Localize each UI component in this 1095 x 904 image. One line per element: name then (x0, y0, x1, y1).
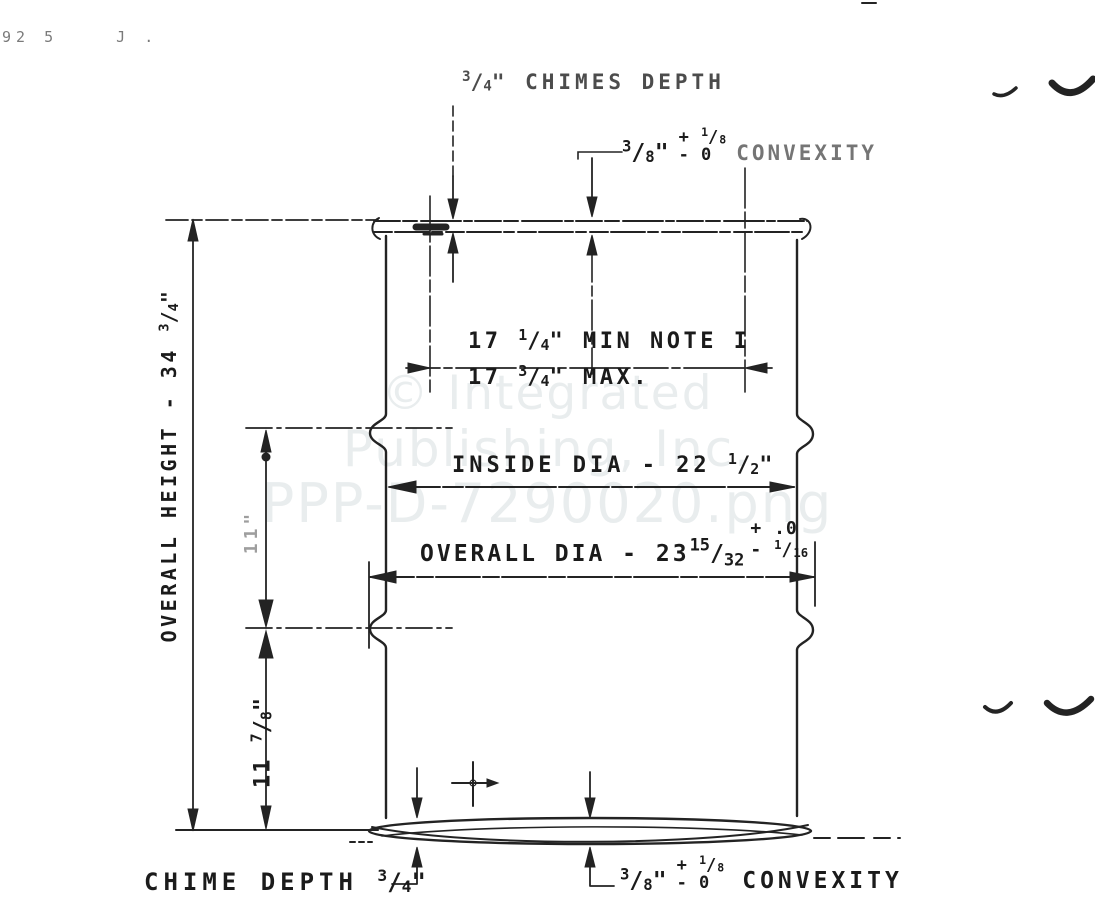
d17min-post: " MIN NOTE I (550, 329, 751, 354)
overall-dia-plus: + .0 (750, 520, 808, 539)
conv-top-frac-den: 8 (645, 147, 654, 166)
inner-arrow-up-lower (259, 631, 273, 658)
overall-height-label: OVERALL HEIGHT - 34 3/4" (159, 288, 182, 643)
chime-top-arrow-down (448, 199, 458, 219)
inner-arrow-down-lower (261, 806, 271, 829)
conv-bottom-frac-den: 8 (643, 875, 652, 894)
overall-dia-tolerance: + .0- 1/16 (750, 520, 808, 561)
inside-dia-arrow-left (388, 481, 416, 493)
chimes-top-text: " CHIMES DEPTH (492, 70, 725, 94)
chime-bottom-frac-den: 4 (402, 877, 412, 896)
overall-height-frac-num: 3 (157, 323, 173, 331)
drawing-sheet: © Integrated Publishing, Inc. PPP-D-7290… (0, 0, 1095, 904)
mid-height-text: 11" (241, 510, 262, 555)
conv-top-frac-num: 3 (622, 136, 631, 155)
inside-dia-frac-num: 1 (728, 450, 737, 468)
conv-top-arrow-down (587, 197, 597, 217)
d17max-pre: 17 (468, 365, 518, 390)
lower-height-frac-slash: / (251, 720, 276, 733)
mid-height-label: 11" (243, 510, 261, 555)
dim-17max-label: 17 3/4" MAX. (468, 364, 650, 389)
d17max-frac-num: 3 (518, 362, 527, 380)
overall-height-frac-slash: / (157, 311, 181, 323)
conv-top-plus-den: 8 (719, 133, 726, 147)
conv-bottom-minus: - 0 (677, 875, 725, 893)
inside-dia-frac-slash: / (737, 453, 750, 478)
corner-scribble: 92 5 J . (2, 28, 158, 46)
overall-dia-frac-slash: / (710, 541, 724, 567)
corner-scribble-left: 92 5 (2, 28, 58, 46)
arrow-17-left (408, 363, 430, 373)
d17max-frac-den: 4 (541, 372, 550, 390)
conv-bottom-text: CONVEXITY (742, 868, 903, 894)
conv-top-bracket (578, 152, 622, 159)
convexity-top-label: 3/8"+ 1/8- 0CONVEXITY (622, 134, 877, 173)
overall-dia-minus-num: 1 (774, 538, 781, 552)
conv-bottom-plus-den: 8 (717, 861, 724, 875)
corner-scribble-right: J . (116, 28, 158, 46)
height-arrow-down (188, 809, 198, 831)
chime-bottom-arrow-down (412, 798, 422, 818)
chimes-depth-top-label: 3/4" CHIMES DEPTH (462, 70, 725, 94)
d17min-frac-num: 1 (518, 326, 527, 344)
overall-dia-minus-den: 16 (793, 546, 808, 560)
crescent-top-small (994, 88, 1016, 96)
chime-bottom-post: " (412, 868, 431, 896)
overall-dia-pre: OVERALL DIA - 23 (420, 541, 690, 567)
lower-height-post: " (251, 696, 276, 711)
overall-dia-label: OVERALL DIA - 2315/32+ .0- 1/16 (420, 534, 808, 575)
chimes-top-frac-slash: / (471, 70, 484, 94)
drum-left-wall (370, 236, 386, 818)
inner-arrow-down-heavy (259, 600, 273, 627)
conv-top-frac-slash: / (631, 140, 645, 166)
d17min-frac-slash: / (527, 329, 540, 354)
inside-dia-post: " (759, 453, 776, 478)
center-cross (452, 762, 492, 806)
inside-dia-arrow-right (770, 482, 795, 492)
chime-depth-bottom-label: CHIME DEPTH 3/4" (144, 868, 431, 895)
conv-bottom-frac-slash: / (629, 868, 643, 894)
chime-bottom-pre: CHIME DEPTH (144, 868, 377, 896)
conv-bottom-frac-num: 3 (620, 864, 629, 883)
overall-dia-frac-den: 32 (724, 551, 745, 571)
overall-dia-minus-sign: - (750, 540, 774, 561)
inner-arrow-up (261, 430, 271, 452)
overall-dia-minus-slash: / (781, 540, 793, 561)
lower-height-frac-den: 8 (257, 711, 275, 720)
conv-top-tolerance: + 1/8- 0 (679, 126, 727, 165)
crescent-mid-large (1047, 699, 1091, 713)
chimes-top-frac-num: 3 (462, 69, 471, 85)
overall-height-post: " (157, 288, 181, 304)
chime-bottom-frac-num: 3 (377, 866, 387, 885)
conv-top-minus: - 0 (679, 147, 727, 165)
overall-dia-frac-num: 15 (690, 536, 711, 556)
lower-height-label: 11 7/8" (249, 696, 274, 788)
d17max-post: " MAX. (550, 365, 650, 390)
lower-height-pre: 11 (251, 742, 276, 788)
conv-top-text: CONVEXITY (736, 141, 877, 165)
overall-height-frac-den: 4 (166, 303, 182, 311)
inside-dia-pre: INSIDE DIA - 22 (452, 453, 728, 478)
conv-top-quote: " (655, 140, 673, 166)
inside-dia-label: INSIDE DIA - 22 1/2" (452, 452, 776, 477)
crescent-mid-small (985, 703, 1011, 712)
conv-bottom-quote: " (653, 868, 671, 894)
lower-height-frac-num: 7 (247, 733, 265, 742)
center-cross-arrow (487, 779, 498, 787)
conv-bottom-arrow-down (585, 798, 595, 818)
d17min-frac-den: 4 (541, 336, 550, 354)
convexity-bottom-label: 3/8"+ 1/8- 0CONVEXITY (620, 862, 903, 901)
d17max-frac-slash: / (527, 365, 540, 390)
inside-dia-frac-den: 2 (750, 460, 759, 478)
dim-17min-label: 17 1/4" MIN NOTE I (468, 328, 750, 353)
height-arrow-up (188, 219, 198, 241)
crescent-top-large (1052, 79, 1093, 93)
overall-height-pre: OVERALL HEIGHT - 34 (157, 332, 181, 643)
d17min-pre: 17 (468, 329, 518, 354)
chimes-top-frac-den: 4 (483, 79, 492, 95)
conv-bottom-tolerance: + 1/8- 0 (677, 854, 725, 893)
arrow-17-right (745, 363, 767, 373)
chime-bottom-frac-slash: / (387, 868, 401, 896)
inner-dim-dot (262, 453, 271, 462)
overall-dia-arrow-left (369, 571, 396, 583)
